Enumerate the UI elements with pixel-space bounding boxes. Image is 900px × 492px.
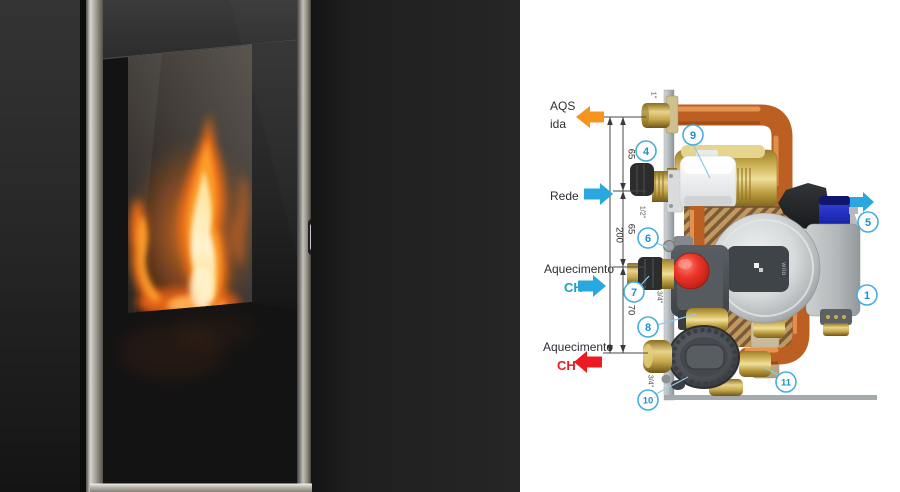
door-frame-left (86, 0, 103, 492)
part-7: 7 (624, 282, 644, 302)
background-wall (0, 0, 88, 492)
flame-hot-core (190, 266, 214, 310)
label-ch-return-ch: CH (557, 358, 576, 373)
fitting-rede (630, 163, 668, 202)
svg-text:5: 5 (865, 217, 871, 229)
hydraulic-kit-diagram: wilo (520, 0, 900, 492)
part-9: 9 (683, 125, 703, 145)
svg-text:7: 7 (631, 287, 637, 299)
pump-logo-mark2 (759, 268, 763, 272)
svg-text:8: 8 (645, 322, 651, 334)
arrow-ch-return (574, 351, 602, 373)
red-knob (673, 253, 709, 289)
svg-text:9: 9 (690, 130, 696, 142)
fitting-aqs (641, 96, 678, 133)
arrow-rede (584, 183, 613, 205)
mixing-valve (671, 236, 729, 317)
part-8: 8 (638, 317, 658, 337)
dim-total: 200 (614, 227, 625, 243)
label-ch-flow: Aquecimento (544, 262, 614, 276)
mounting-plate-bottom-edge (664, 395, 877, 400)
label-aqs-line1: AQS (550, 99, 575, 113)
stove-side-panel (311, 0, 520, 492)
label-rede: Rede (550, 189, 579, 203)
dim-seg-top: 65 (626, 149, 637, 160)
svg-text:10: 10 (643, 396, 654, 407)
dim-seg-middle: 65 (626, 224, 637, 235)
svg-text:4: 4 (643, 146, 650, 158)
pipe-size-ch-return: 3/4" (647, 375, 654, 388)
door-sill (90, 484, 312, 492)
label-aqs-line2: ida (550, 117, 566, 131)
part-6: 6 (638, 228, 658, 248)
fire-window (128, 45, 256, 330)
svg-text:11: 11 (781, 378, 792, 389)
part-11: 11 (776, 372, 796, 392)
pipe-size-aqs: 1" (650, 92, 657, 99)
label-ch-return: Aquecimento (543, 340, 613, 354)
pipe-size-ch-flow: 3/4" (656, 291, 663, 304)
pump-label (727, 246, 789, 292)
arrow-aqs (576, 106, 604, 128)
product-sheet-image: wilo (0, 0, 900, 492)
part-10: 10 (638, 390, 658, 410)
part-4: 4 (636, 141, 656, 161)
svg-text:1: 1 (864, 290, 870, 302)
pump-brand: wilo (780, 261, 787, 275)
pump-logo-mark (754, 263, 759, 268)
svg-text:6: 6 (645, 233, 651, 245)
pipe-size-rede: 1/2" (639, 206, 646, 219)
stove-glass-door (103, 0, 298, 484)
pellet-stove-photo (0, 0, 520, 492)
door-edge-shadow (80, 0, 87, 492)
part-5: 5 (858, 212, 878, 232)
part-1: 1 (857, 285, 877, 305)
dim-seg-bottom: 70 (626, 305, 637, 316)
